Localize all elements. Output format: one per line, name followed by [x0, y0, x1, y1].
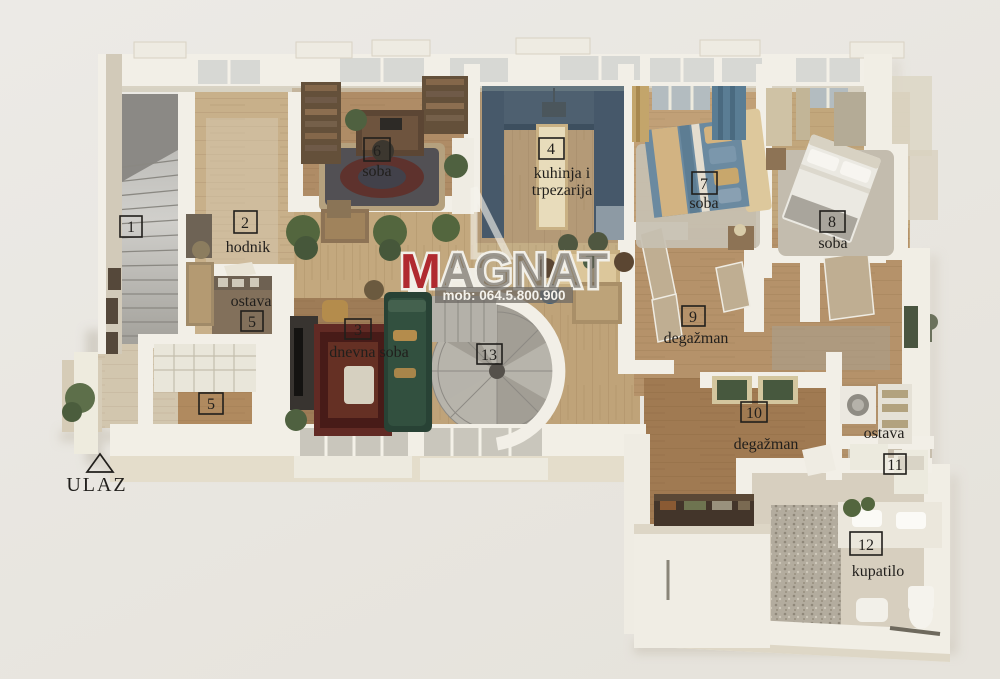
svg-text:soba: soba — [362, 163, 391, 180]
svg-text:kuhinja i: kuhinja i — [534, 165, 591, 182]
svg-text:kupatilo: kupatilo — [852, 563, 904, 580]
svg-text:ostava: ostava — [864, 425, 905, 442]
svg-text:M: M — [400, 245, 441, 299]
svg-text:12: 12 — [858, 537, 874, 554]
svg-text:soba: soba — [818, 235, 847, 252]
svg-text:dnevna soba: dnevna soba — [329, 344, 409, 361]
svg-text:5: 5 — [207, 396, 215, 413]
svg-text:2: 2 — [241, 215, 249, 232]
svg-text:7: 7 — [700, 176, 708, 193]
svg-text:ostava: ostava — [231, 293, 272, 310]
svg-text:1: 1 — [127, 219, 135, 236]
svg-text:degažman: degažman — [664, 330, 729, 347]
svg-text:13: 13 — [481, 347, 497, 364]
svg-text:11: 11 — [887, 457, 902, 474]
svg-text:degažman: degažman — [734, 436, 799, 453]
svg-text:mob: 064.5.800.900: mob: 064.5.800.900 — [442, 288, 565, 303]
svg-text:9: 9 — [689, 309, 697, 326]
svg-text:4: 4 — [547, 141, 555, 158]
svg-text:trpezarija: trpezarija — [532, 182, 592, 199]
svg-text:ULAZ: ULAZ — [66, 474, 127, 496]
svg-text:3: 3 — [354, 322, 362, 339]
svg-text:soba: soba — [689, 195, 718, 212]
svg-text:8: 8 — [828, 214, 836, 231]
svg-text:10: 10 — [746, 405, 762, 422]
svg-text:5: 5 — [248, 314, 256, 331]
svg-text:6: 6 — [373, 143, 381, 160]
svg-text:hodnik: hodnik — [226, 239, 270, 256]
